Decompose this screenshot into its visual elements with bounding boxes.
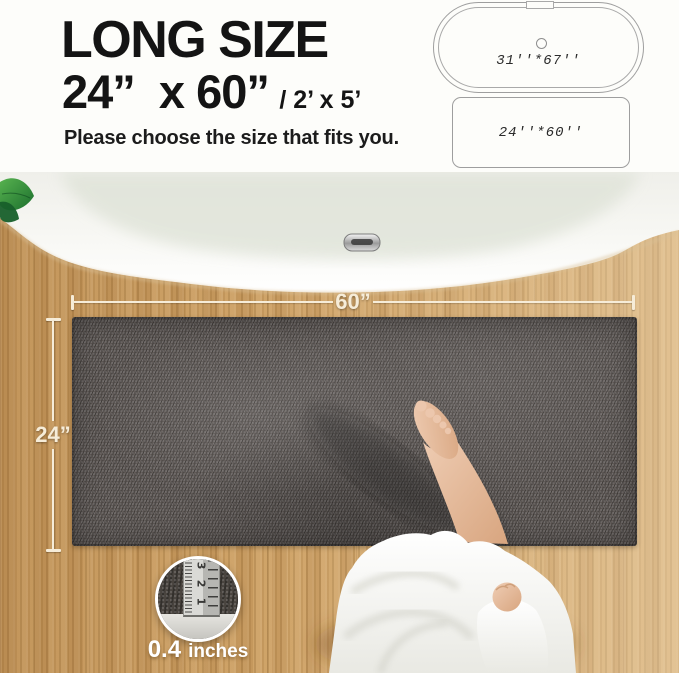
ruler-fine-ticks [185,559,192,614]
bathtub-size-label: 31''*67'' [434,53,643,69]
header: LONG SIZE 24” x 60” / 2’ x 5’ Please cho… [0,0,679,172]
thickness-inset: 3 2 1 [155,556,241,642]
ruler-number: 1 [194,598,207,606]
ruler-numbers: 3 2 1 [197,559,205,609]
bathtub-size-diagram: 31''*67'' [433,2,644,93]
bathtub-drain-icon [536,38,547,49]
headline: LONG SIZE [61,10,328,70]
ruler-number: 3 [194,562,207,570]
size-main-text: 24” x 60” [62,65,269,118]
size-alt-text: / 2’ x 5’ [279,86,361,114]
mat-size-diagram: 24''*60'' [452,97,630,168]
ruler-icon: 3 2 1 [183,557,220,617]
thickness-label: 0.4inches [121,636,275,664]
bathtub-faucet-notch [526,1,554,9]
ruler-coarse-ticks [208,560,218,614]
product-infographic: LONG SIZE 24” x 60” / 2’ x 5’ Please cho… [0,0,679,673]
size-line: 24” x 60” / 2’ x 5’ [62,64,361,119]
person-foot-and-robe [0,172,679,673]
choose-size-note: Please choose the size that fits you. [64,127,399,150]
ruler-number: 2 [194,580,207,588]
mat-size-label: 24''*60'' [499,125,584,141]
thickness-value: 0.4 [148,636,181,663]
thickness-unit: inches [188,641,248,662]
bathroom-photo: 60” 24” [0,172,679,673]
